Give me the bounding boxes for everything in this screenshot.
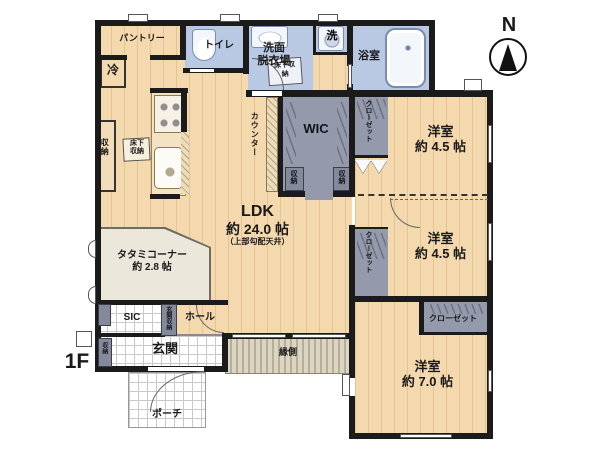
bifold-door-mark bbox=[371, 160, 387, 173]
wic-label: WIC bbox=[295, 122, 337, 137]
bedroom-ne-label: 洋室 約 4.5 帖 bbox=[398, 125, 483, 155]
bathtub bbox=[385, 28, 426, 88]
wall bbox=[95, 55, 127, 60]
ldk-counter bbox=[266, 97, 278, 192]
fridge-label: 冷 bbox=[101, 64, 125, 78]
bedroom-ne-ext-door bbox=[464, 79, 482, 91]
wall bbox=[347, 20, 353, 66]
bath-sliding-door bbox=[348, 64, 352, 88]
ldk-label: LDK 約 24.0 帖 （上部勾配天井） bbox=[195, 203, 320, 247]
wall bbox=[349, 296, 493, 302]
tatami-door-mark bbox=[88, 240, 96, 258]
kitchen-sink bbox=[154, 147, 183, 189]
laundry-label: 洗 bbox=[322, 30, 342, 43]
porch-label: ポーチ bbox=[138, 409, 196, 421]
pantry-label: パントリー bbox=[108, 33, 176, 43]
ldk-window bbox=[292, 334, 346, 338]
north-label: N bbox=[497, 14, 521, 37]
window bbox=[400, 434, 452, 438]
toilet-door-opening bbox=[190, 69, 214, 72]
counter-label: カウンター bbox=[250, 112, 259, 157]
window bbox=[488, 370, 492, 392]
stove bbox=[154, 95, 183, 133]
underfloor-washroom-label: 床下収納 bbox=[271, 61, 298, 80]
wall bbox=[180, 20, 186, 60]
underfloor-kitchen-label: 床下収納 bbox=[127, 140, 147, 157]
north-arrow-icon bbox=[499, 44, 517, 71]
wall bbox=[349, 90, 355, 197]
ldk-window bbox=[232, 334, 286, 338]
exterior-door-mark bbox=[128, 14, 148, 22]
wall bbox=[95, 333, 165, 337]
exterior-door-mark bbox=[220, 14, 240, 22]
wall bbox=[429, 20, 435, 96]
sic-storage bbox=[98, 304, 111, 326]
wall bbox=[150, 194, 180, 199]
window bbox=[488, 125, 492, 163]
tatami-door-mark bbox=[88, 286, 96, 304]
left-storage bbox=[99, 120, 116, 192]
toilet-label: トイレ bbox=[195, 40, 243, 52]
left-storage-label: 収納 bbox=[100, 138, 109, 156]
hall-label: ホール bbox=[178, 312, 222, 324]
tatami-label: タタミコーナー 約 2.8 帖 bbox=[102, 250, 202, 273]
sic-label: SIC bbox=[112, 312, 152, 324]
wall bbox=[313, 20, 316, 55]
bedroom-se-label: 洋室 約 7.0 帖 bbox=[385, 360, 470, 390]
floor-label: 1F bbox=[60, 350, 94, 374]
entrance-side-storage-label: 収納 bbox=[100, 342, 107, 354]
engawa-label: 縁側 bbox=[268, 347, 308, 357]
closet-e-label: クローゼット bbox=[364, 231, 372, 273]
wall bbox=[278, 191, 305, 197]
bath-label: 浴室 bbox=[354, 50, 384, 63]
window bbox=[488, 223, 492, 261]
wall bbox=[181, 88, 187, 132]
meter-box bbox=[76, 331, 92, 347]
wall bbox=[278, 92, 283, 196]
bifold-door-mark bbox=[355, 160, 371, 173]
washroom-door-opening bbox=[252, 91, 282, 96]
entrance-storage-label: 玄関収納 bbox=[164, 306, 171, 330]
wall bbox=[150, 55, 186, 60]
wall bbox=[333, 191, 355, 197]
wall bbox=[246, 90, 493, 97]
partition-dashed-line bbox=[358, 194, 488, 196]
entrance-label: 玄関 bbox=[135, 342, 195, 357]
bedroom-se-door-leaf bbox=[342, 374, 350, 396]
closet-ne-label: クローゼット bbox=[364, 100, 372, 142]
floor-plan: パントリー 冷 トイレ 洗面 脱衣場 洗 浴室 床下収納 床下収納 収納 WIC… bbox=[0, 0, 600, 450]
exterior-door-mark bbox=[318, 14, 338, 22]
wic-storage-label-1: 収納 bbox=[289, 170, 297, 184]
wic-entry bbox=[305, 191, 333, 200]
wic-storage-label-2: 収納 bbox=[337, 170, 345, 184]
closet-se-label: クローゼット bbox=[424, 314, 482, 323]
wall bbox=[313, 52, 350, 55]
bedroom-e-label: 洋室 約 4.5 帖 bbox=[398, 232, 483, 262]
kitchen-counter-edge bbox=[181, 130, 189, 194]
wall bbox=[222, 333, 228, 372]
